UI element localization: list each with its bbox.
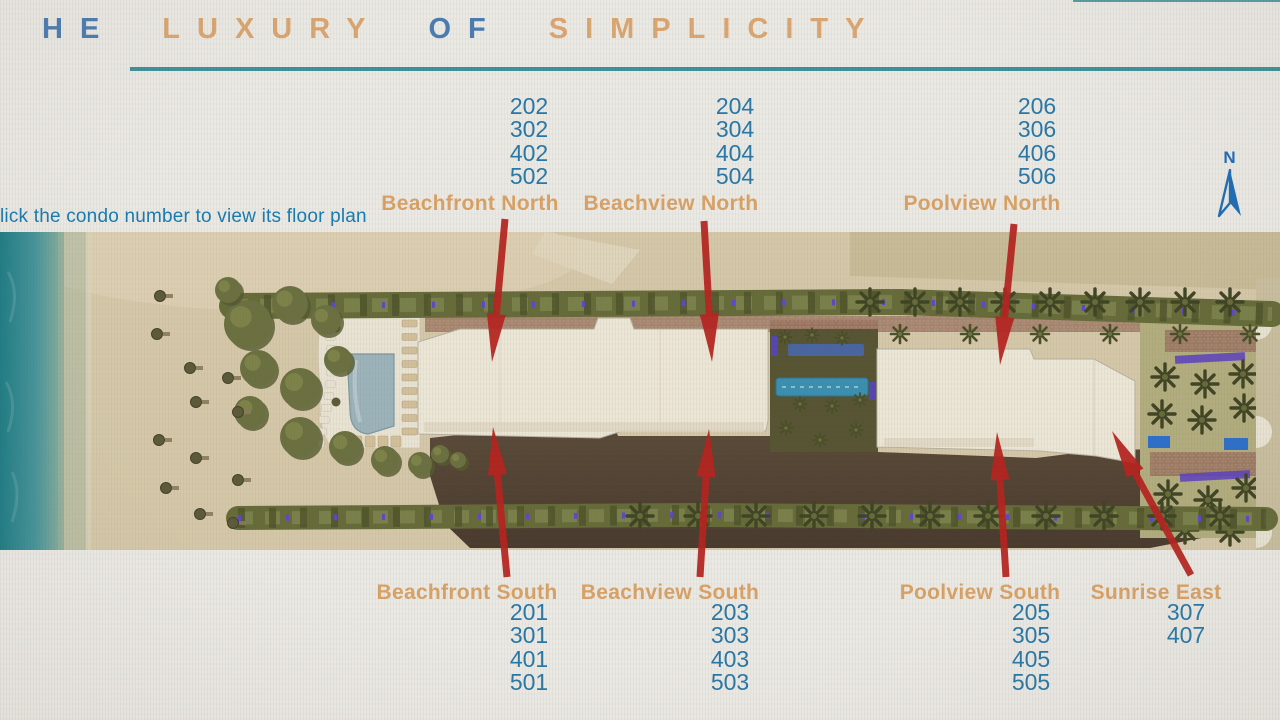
condo-number-link[interactable]: 402 (469, 142, 589, 165)
title-word: SIMPLICITY (549, 13, 882, 45)
condo-number-link[interactable]: 406 (977, 142, 1097, 165)
section-label-beachview-north: Beachview North (551, 192, 791, 216)
condo-number-link[interactable]: 305 (971, 624, 1091, 647)
condo-number-link[interactable]: 206 (977, 95, 1097, 118)
top-hedge-row (232, 302, 1272, 314)
unit-column-poolview-north: 206306406506 (977, 95, 1097, 188)
page: HELUXURYOFSIMPLICITY lick the condo numb… (0, 0, 1280, 720)
unit-column-beachview-south: 203303403503 (670, 601, 790, 694)
compass-n-label: N (1204, 148, 1256, 168)
unit-column-poolview-south: 205305405505 (971, 601, 1091, 694)
north-arrow-icon (1216, 169, 1244, 219)
condo-number-link[interactable]: 506 (977, 165, 1097, 188)
unit-column-beachfront-south: 201301401501 (469, 601, 589, 694)
title-word: LUXURY (162, 13, 382, 45)
condo-number-link[interactable]: 203 (670, 601, 790, 624)
unit-column-sunrise-east: 307407 (1126, 601, 1246, 648)
section-label-poolview-north: Poolview North (862, 192, 1102, 216)
title-word: HE (42, 13, 116, 45)
unit-column-beachview-north: 204304404504 (675, 95, 795, 188)
condo-number-link[interactable]: 302 (469, 118, 589, 141)
condo-number-link[interactable]: 403 (670, 648, 790, 671)
condo-number-link[interactable]: 304 (675, 118, 795, 141)
page-title: HELUXURYOFSIMPLICITY (42, 13, 927, 46)
condo-number-link[interactable]: 301 (469, 624, 589, 647)
building-beachfront-beachview (418, 318, 768, 438)
title-underline (130, 67, 1280, 71)
condo-number-link[interactable]: 504 (675, 165, 795, 188)
instruction-text: lick the condo number to view its floor … (0, 206, 367, 228)
site-plan-rendering (0, 232, 1280, 550)
condo-number-link[interactable]: 407 (1126, 624, 1246, 647)
top-edge-line (1073, 0, 1280, 2)
unit-column-beachfront-north: 202302402502 (469, 95, 589, 188)
condo-number-link[interactable]: 307 (1126, 601, 1246, 624)
condo-number-link[interactable]: 501 (469, 671, 589, 694)
condo-number-link[interactable]: 204 (675, 95, 795, 118)
condo-number-link[interactable]: 505 (971, 671, 1091, 694)
condo-number-link[interactable]: 306 (977, 118, 1097, 141)
condo-number-link[interactable]: 502 (469, 165, 589, 188)
condo-number-link[interactable]: 503 (670, 671, 790, 694)
shoreline (86, 232, 91, 550)
north-compass: N (1204, 148, 1256, 219)
condo-number-link[interactable]: 202 (469, 95, 589, 118)
title-word: OF (428, 13, 502, 45)
condo-number-link[interactable]: 405 (971, 648, 1091, 671)
condo-number-link[interactable]: 401 (469, 648, 589, 671)
condo-number-link[interactable]: 404 (675, 142, 795, 165)
condo-number-link[interactable]: 303 (670, 624, 790, 647)
